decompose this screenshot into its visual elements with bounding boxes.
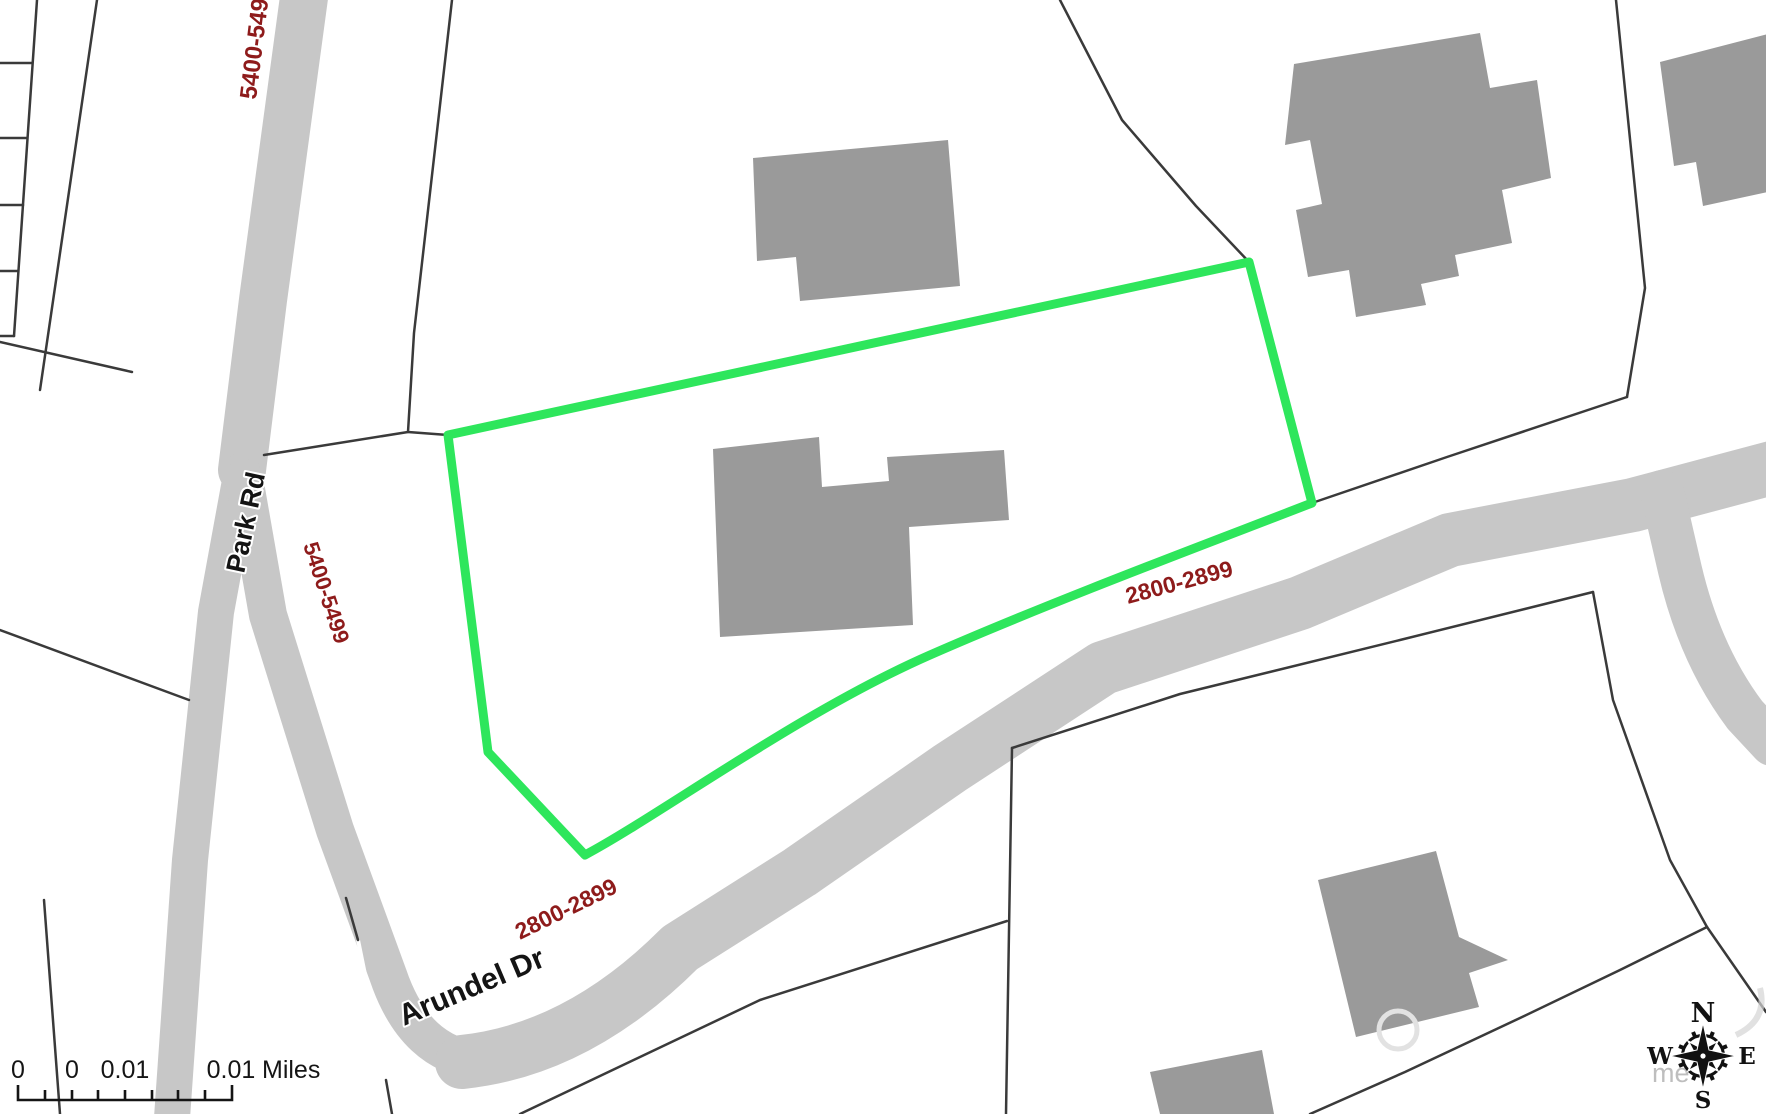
parcel-line (1312, 397, 1627, 503)
building-footprint (1285, 33, 1551, 317)
parcel-line (0, 630, 189, 700)
compass-n: N (1691, 998, 1716, 1029)
scalebar-tick-label: 0.01 (101, 1056, 150, 1084)
building-footprint (1318, 851, 1508, 1037)
parcel-line (386, 1080, 392, 1114)
parcel-line (44, 900, 60, 1114)
watermark-swirl (1736, 988, 1762, 1035)
building-footprint (753, 140, 960, 301)
building-footprint (1660, 34, 1766, 206)
scalebar-unit-label: Miles (262, 1056, 320, 1084)
parcel-line (40, 0, 97, 390)
compass-rose: N E S W (1646, 998, 1756, 1114)
address-range-label: 2800-2899 (1123, 555, 1236, 609)
parcel-line (408, 0, 452, 435)
parcel-line (0, 342, 132, 372)
parcel-line (1006, 748, 1012, 1114)
address-range-label: 5400-5499 (298, 539, 354, 647)
building-footprint (1150, 1050, 1274, 1114)
parcel-line (1707, 927, 1766, 1012)
buildings-layer (713, 33, 1766, 1114)
building-footprint (713, 437, 1009, 637)
scalebar-tick-label: 0 (65, 1056, 79, 1084)
compass-s: S (1695, 1087, 1712, 1114)
scalebar-tick-label: 0.01 (207, 1056, 256, 1084)
parcel-line (264, 432, 408, 455)
road-arundel-dr (462, 468, 1766, 1062)
compass-e: E (1738, 1043, 1756, 1070)
parcel-line (14, 0, 37, 336)
map-canvas[interactable]: me 5400-5499 5400-5499 2800-2899 2800-28… (0, 0, 1766, 1114)
road-crossing-lines (358, 552, 1766, 1078)
parcel-line (1616, 0, 1645, 397)
address-range-label: 2800-2899 (511, 873, 621, 945)
compass-w: W (1646, 1043, 1674, 1070)
parcel-line (1060, 0, 1249, 262)
street-name-label: Arundel Dr (394, 941, 550, 1032)
road-right-branch (1662, 492, 1766, 744)
scalebar-ruler (18, 1085, 232, 1100)
scalebar-tick-label: 0 (11, 1056, 25, 1084)
road-park-branch (244, 478, 480, 1061)
